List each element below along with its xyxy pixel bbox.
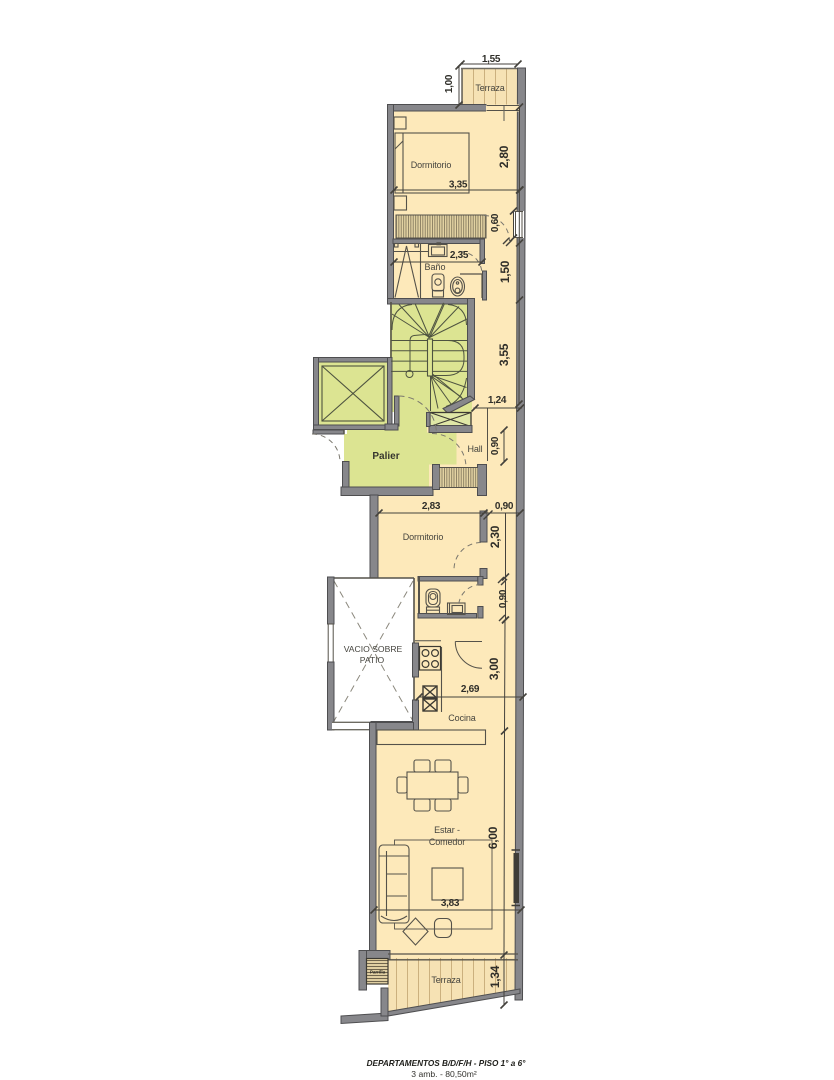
svg-text:1,50: 1,50 — [498, 260, 512, 283]
svg-text:Dormitorio: Dormitorio — [411, 160, 452, 170]
svg-text:0,90: 0,90 — [495, 501, 514, 512]
svg-text:Estar -: Estar - — [434, 825, 460, 835]
svg-text:2,80: 2,80 — [497, 145, 511, 168]
svg-text:DEPARTAMENTOS B/D/F/H - PISO 1: DEPARTAMENTOS B/D/F/H - PISO 1° a 6° — [367, 1059, 527, 1068]
svg-text:3,55: 3,55 — [497, 343, 511, 366]
svg-text:6,00: 6,00 — [486, 826, 500, 849]
svg-text:2,35: 2,35 — [450, 250, 469, 261]
svg-text:2,69: 2,69 — [461, 684, 480, 695]
svg-text:Parrilla: Parrilla — [370, 970, 386, 975]
svg-text:0,60: 0,60 — [490, 213, 501, 232]
svg-text:3,83: 3,83 — [441, 898, 460, 909]
svg-text:Dormitorio: Dormitorio — [403, 532, 444, 542]
svg-text:0,90: 0,90 — [490, 436, 501, 455]
svg-text:3,00: 3,00 — [487, 657, 501, 680]
svg-text:2,30: 2,30 — [488, 525, 502, 548]
svg-text:3,35: 3,35 — [449, 180, 468, 191]
svg-text:Terraza: Terraza — [475, 83, 504, 93]
svg-text:Comedor: Comedor — [429, 837, 465, 847]
svg-text:PATIO: PATIO — [360, 655, 385, 665]
svg-text:0,90: 0,90 — [498, 589, 509, 608]
svg-text:Terraza: Terraza — [431, 975, 460, 985]
svg-text:Cocina: Cocina — [448, 713, 476, 723]
svg-text:1,24: 1,24 — [488, 395, 507, 406]
svg-text:1,55: 1,55 — [482, 54, 501, 65]
svg-text:Palier: Palier — [372, 451, 399, 462]
svg-text:1,00: 1,00 — [444, 74, 455, 93]
svg-text:3 amb. - 80,50m²: 3 amb. - 80,50m² — [411, 1069, 477, 1079]
svg-text:1,34: 1,34 — [488, 965, 502, 988]
svg-text:VACIO SOBRE: VACIO SOBRE — [344, 644, 403, 654]
svg-text:Hall: Hall — [467, 444, 482, 454]
svg-text:2,83: 2,83 — [422, 501, 441, 512]
svg-text:Baño: Baño — [424, 262, 445, 272]
